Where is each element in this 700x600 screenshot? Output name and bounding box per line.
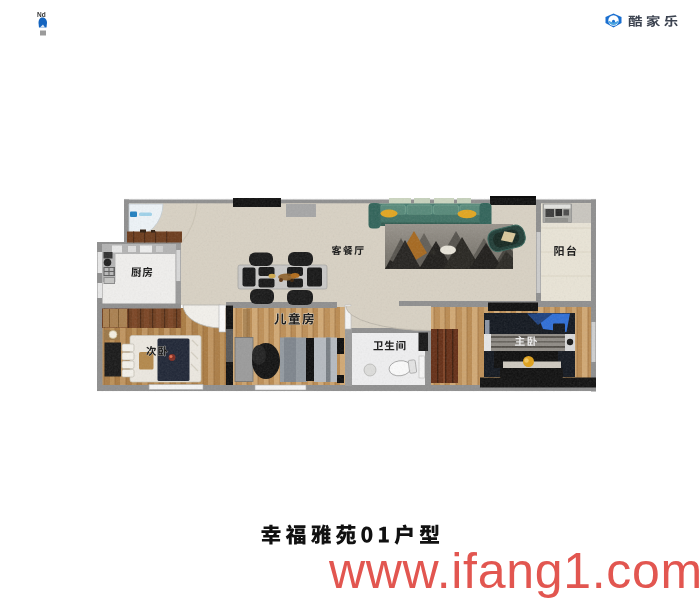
svg-text:Nd: Nd — [37, 11, 46, 18]
